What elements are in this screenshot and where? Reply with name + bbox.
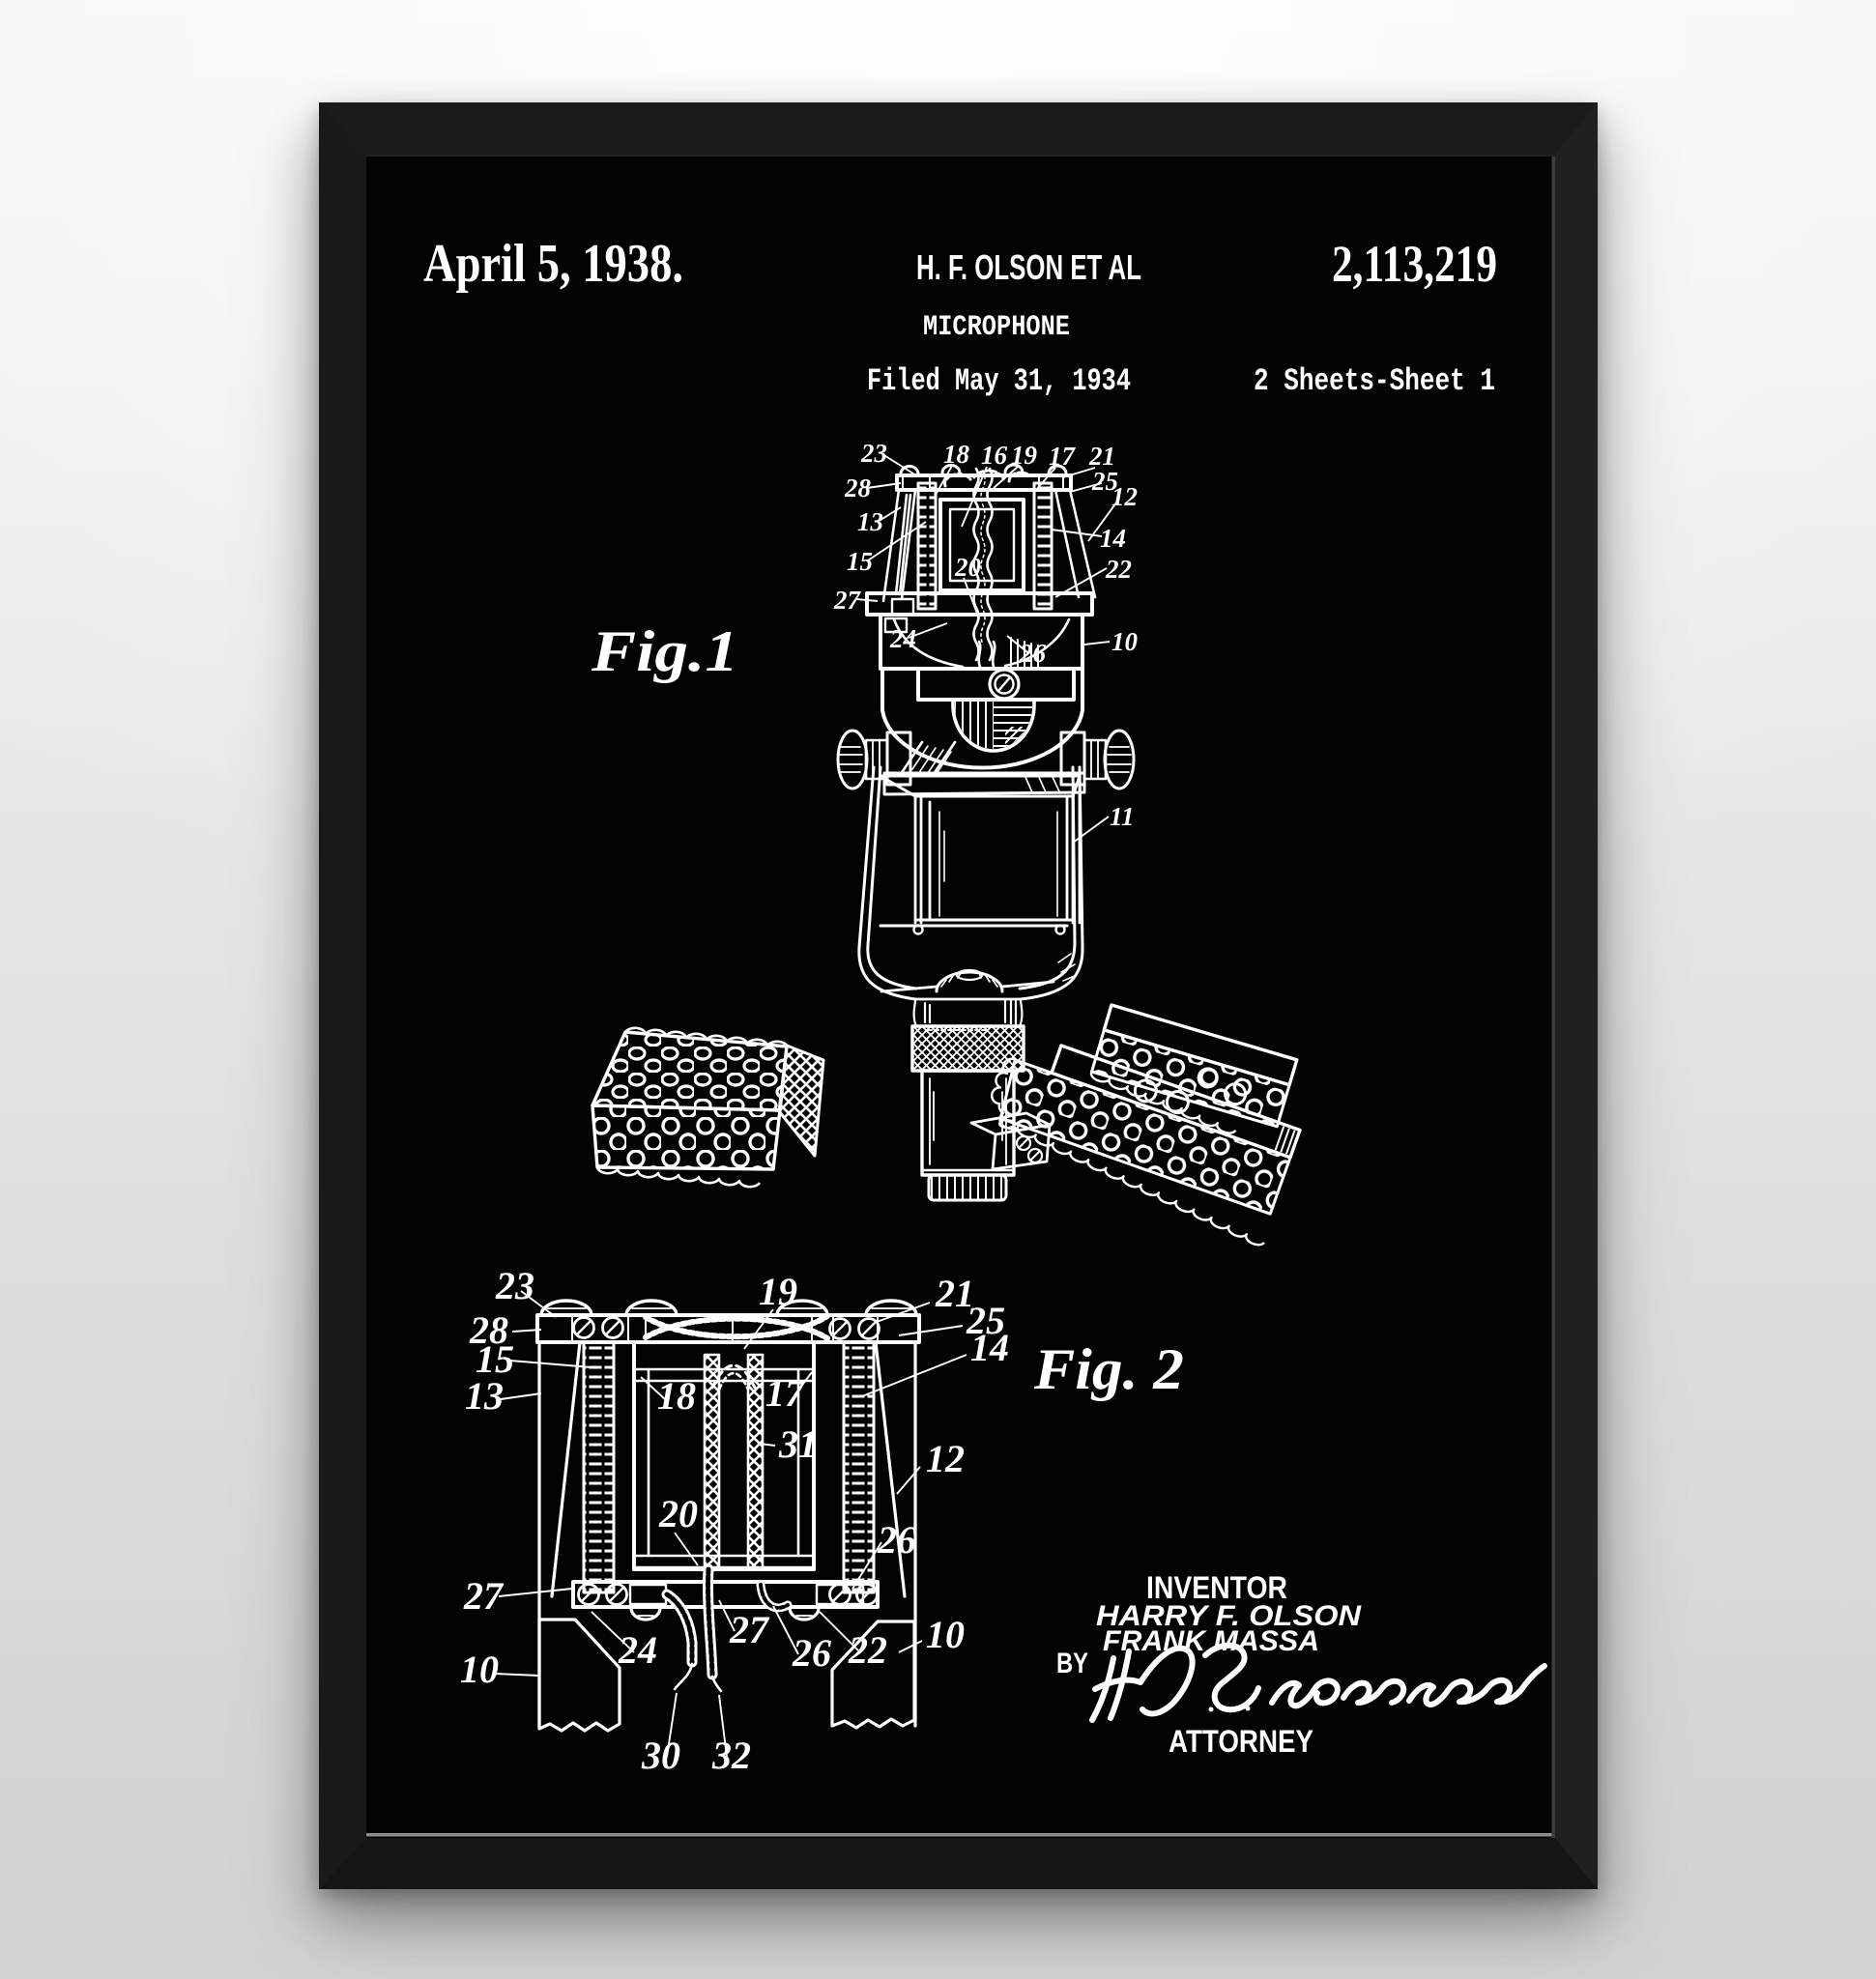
- svg-text:31: 31: [778, 1422, 818, 1466]
- svg-text:22: 22: [1105, 555, 1132, 584]
- svg-text:12: 12: [1111, 482, 1138, 511]
- svg-text:17: 17: [765, 1371, 806, 1415]
- svg-text:13: 13: [465, 1374, 504, 1418]
- svg-text:April 5, 1938.: April 5, 1938.: [423, 234, 683, 294]
- svg-text:17: 17: [1049, 442, 1077, 471]
- svg-text:Filed May 31, 1934: Filed May 31, 1934: [867, 363, 1131, 399]
- svg-text:2,113,219: 2,113,219: [1332, 235, 1497, 293]
- svg-text:H. F. OLSON ET AL: H. F. OLSON ET AL: [916, 247, 1141, 287]
- svg-text:20: 20: [658, 1492, 698, 1535]
- svg-text:26: 26: [877, 1518, 916, 1562]
- svg-text:15: 15: [847, 547, 873, 576]
- svg-text:32: 32: [711, 1734, 751, 1777]
- svg-text:19: 19: [759, 1270, 797, 1313]
- svg-text:20: 20: [954, 553, 982, 582]
- svg-text:27: 27: [729, 1608, 770, 1651]
- svg-text:27: 27: [463, 1574, 505, 1618]
- svg-text:10: 10: [926, 1613, 965, 1656]
- svg-text:18: 18: [943, 440, 970, 469]
- svg-text:Fig. 2: Fig. 2: [1033, 1337, 1184, 1401]
- svg-text:18: 18: [657, 1374, 696, 1418]
- svg-text:23: 23: [860, 439, 887, 468]
- svg-text:10: 10: [1111, 627, 1139, 656]
- svg-text:24: 24: [889, 624, 916, 653]
- svg-text:30: 30: [641, 1734, 680, 1777]
- svg-text:11: 11: [1110, 802, 1135, 831]
- svg-text:10: 10: [460, 1648, 499, 1691]
- svg-text:13: 13: [857, 507, 883, 536]
- svg-text:14: 14: [970, 1326, 1009, 1369]
- svg-text:22: 22: [848, 1628, 887, 1672]
- svg-text:BY: BY: [1056, 1648, 1088, 1679]
- svg-text:MICROPHONE: MICROPHONE: [923, 311, 1070, 344]
- svg-text:19: 19: [1011, 441, 1038, 470]
- svg-text:16: 16: [981, 441, 1008, 470]
- svg-text:14: 14: [1100, 524, 1126, 553]
- svg-text:23: 23: [495, 1264, 534, 1307]
- svg-text:24: 24: [618, 1628, 657, 1672]
- svg-text:26: 26: [1019, 639, 1047, 668]
- svg-text:ATTORNEY: ATTORNEY: [1169, 1724, 1313, 1759]
- svg-text:12: 12: [926, 1437, 965, 1480]
- svg-text:Fig.1: Fig.1: [591, 619, 738, 683]
- svg-text:2 Sheets-Sheet 1: 2 Sheets-Sheet 1: [1254, 363, 1495, 399]
